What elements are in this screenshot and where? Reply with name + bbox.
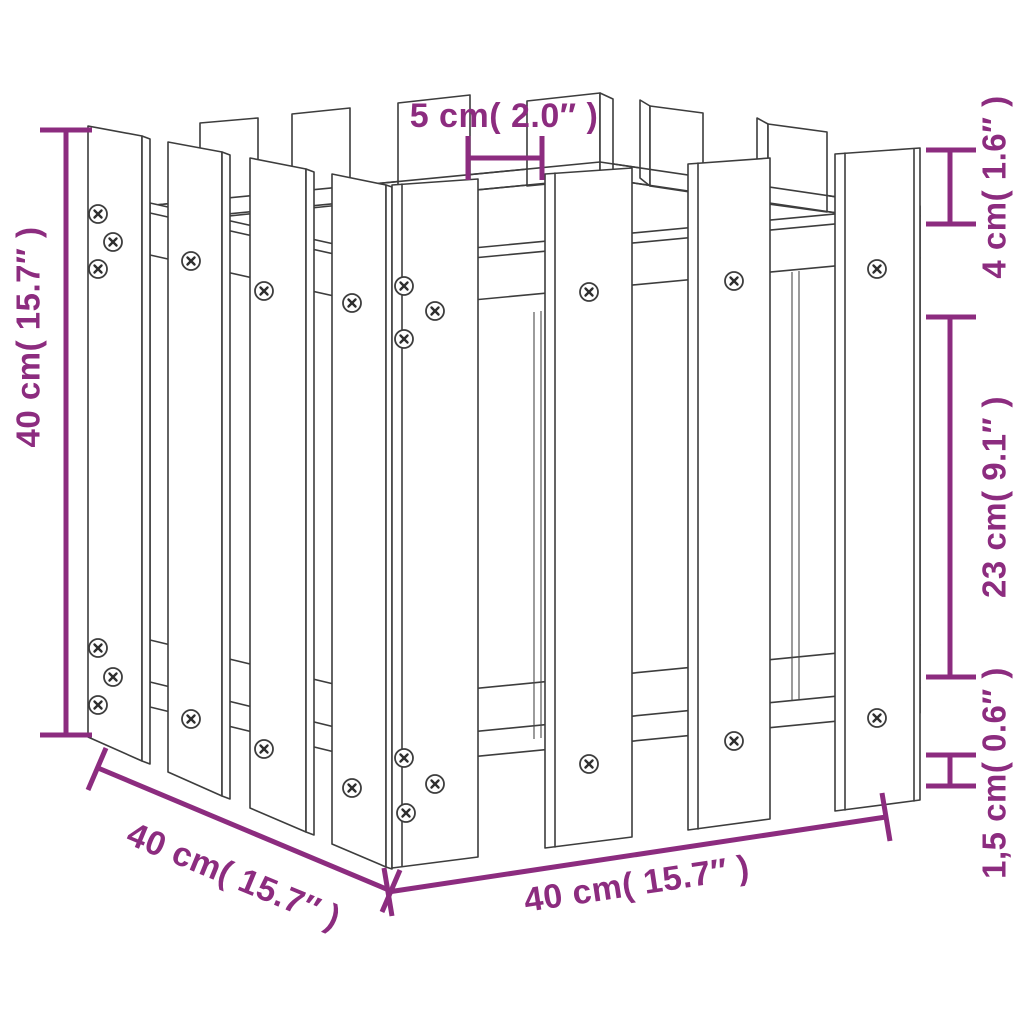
screw-icon <box>182 252 200 270</box>
screw-icon <box>343 294 361 312</box>
screw-icon <box>725 272 743 290</box>
screw-icon <box>255 740 273 758</box>
screw-icon <box>89 639 107 657</box>
screw-icon <box>580 755 598 773</box>
screw-icon <box>104 233 122 251</box>
product-dimension-diagram: 5 cm( 2.0″ ) 4 cm( 1.6″ ) 23 cm( 9.1″ ) … <box>0 0 1024 1024</box>
screw-icon <box>395 330 413 348</box>
screw-icon <box>89 260 107 278</box>
dimension-label-bottom-width: 40 cm( 15.7″ ) <box>521 848 752 920</box>
dimension-label-right-top: 4 cm( 1.6″ ) <box>976 95 1013 278</box>
screw-icon <box>89 205 107 223</box>
screw-icon <box>397 804 415 822</box>
screw-icon <box>395 749 413 767</box>
screw-icon <box>395 277 413 295</box>
screw-icon <box>182 710 200 728</box>
screw-icon <box>343 779 361 797</box>
screw-icon <box>426 302 444 320</box>
screw-icon <box>89 696 107 714</box>
screw-icon <box>868 260 886 278</box>
screw-icon <box>426 775 444 793</box>
screw-icon <box>868 709 886 727</box>
dimension-label-right-middle: 23 cm( 9.1″ ) <box>976 396 1013 598</box>
dimension-right-top: 4 cm( 1.6″ ) <box>926 95 1013 278</box>
dimension-label-top-gap: 5 cm( 2.0″ ) <box>410 97 599 135</box>
screw-icon <box>725 732 743 750</box>
planter-line-drawing: 5 cm( 2.0″ ) 4 cm( 1.6″ ) 23 cm( 9.1″ ) … <box>0 0 1024 1024</box>
dimension-left-height: 40 cm( 15.7″ ) <box>10 130 92 735</box>
dimension-right-bottom: 1,5 cm( 0.6″ ) <box>926 667 1013 879</box>
dimension-label-right-bottom: 1,5 cm( 0.6″ ) <box>976 667 1013 879</box>
screw-icon <box>580 283 598 301</box>
screw-icon <box>104 668 122 686</box>
screw-icon <box>255 282 273 300</box>
dimension-right-middle: 23 cm( 9.1″ ) <box>926 317 1013 677</box>
dimension-label-left-height: 40 cm( 15.7″ ) <box>10 227 47 448</box>
